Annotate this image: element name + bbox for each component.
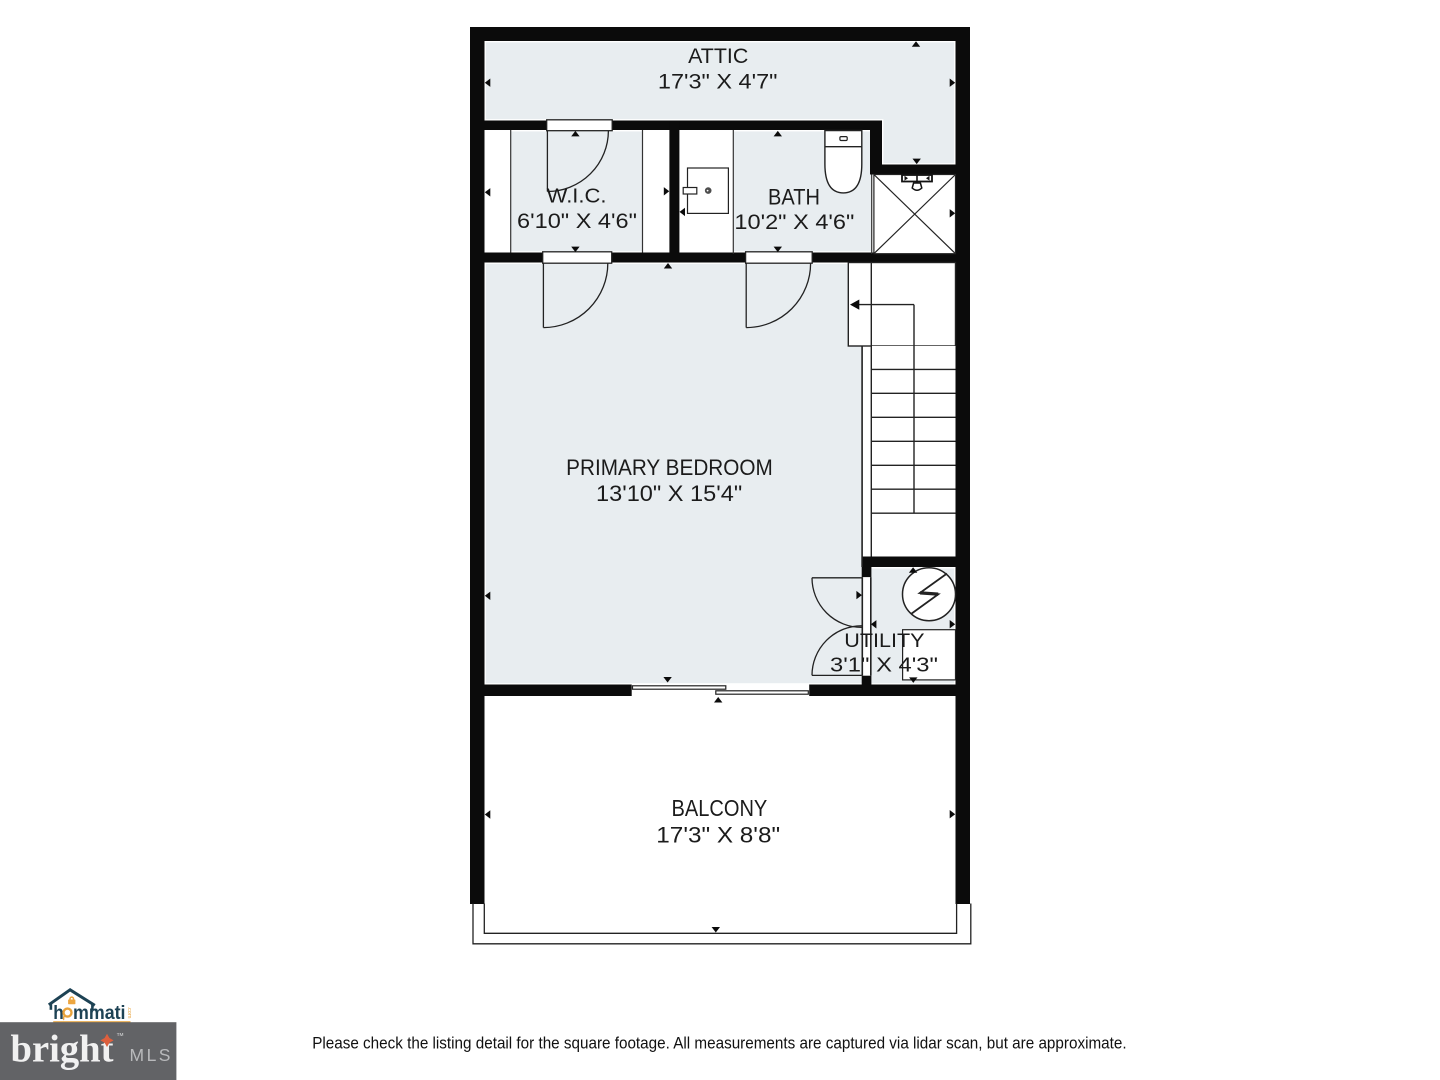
svg-text:Please check the listing detai: Please check the listing detail for the … xyxy=(312,1034,1126,1052)
svg-text:13'10" X 15'4": 13'10" X 15'4" xyxy=(596,481,742,506)
svg-text:W.I.C.: W.I.C. xyxy=(547,186,607,208)
svg-text:UTILITY: UTILITY xyxy=(844,630,924,652)
svg-text:h: h xyxy=(53,1003,64,1024)
svg-text:™: ™ xyxy=(116,1032,124,1041)
svg-text:.com: .com xyxy=(126,1007,132,1019)
svg-text:17'3" X 8'8": 17'3" X 8'8" xyxy=(656,822,780,847)
svg-text:ATTIC: ATTIC xyxy=(688,44,748,68)
svg-text:mmati: mmati xyxy=(73,1003,126,1024)
svg-text:17'3" X 4'7": 17'3" X 4'7" xyxy=(658,70,778,94)
svg-text:BALCONY: BALCONY xyxy=(672,795,768,821)
svg-text:3'1" X 4'3": 3'1" X 4'3" xyxy=(830,654,938,676)
svg-text:PRIMARY BEDROOM: PRIMARY BEDROOM xyxy=(566,455,773,480)
svg-text:10'2" X 4'6": 10'2" X 4'6" xyxy=(734,210,854,234)
svg-text:6'10" X 4'6": 6'10" X 4'6" xyxy=(517,210,637,233)
svg-text:MLS: MLS xyxy=(130,1045,173,1065)
svg-text:BATH: BATH xyxy=(768,184,820,209)
svg-text:bright: bright xyxy=(11,1028,114,1071)
